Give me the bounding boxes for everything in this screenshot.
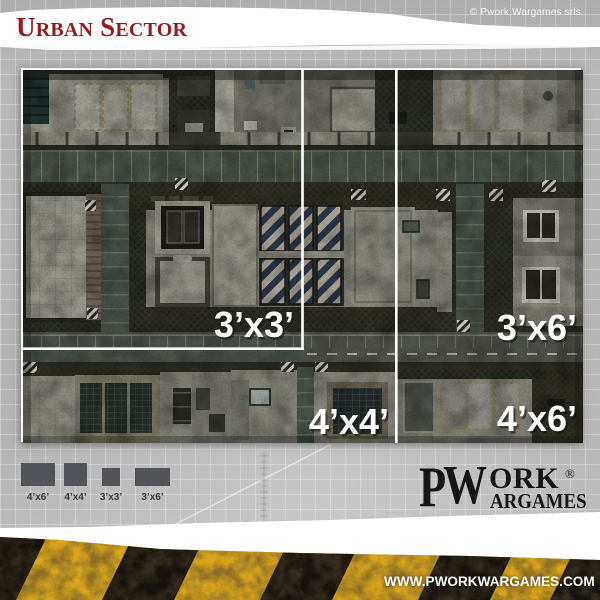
svg-text:WWW.PWORKWARGAMES.COM: WWW.PWORKWARGAMES.COM <box>384 574 595 589</box>
svg-text:4’x6’: 4’x6’ <box>497 398 577 439</box>
svg-text:3’x3’: 3’x3’ <box>214 304 294 345</box>
svg-text:3’x6’: 3’x6’ <box>497 307 577 348</box>
svg-text:4’x4’: 4’x4’ <box>309 401 389 442</box>
